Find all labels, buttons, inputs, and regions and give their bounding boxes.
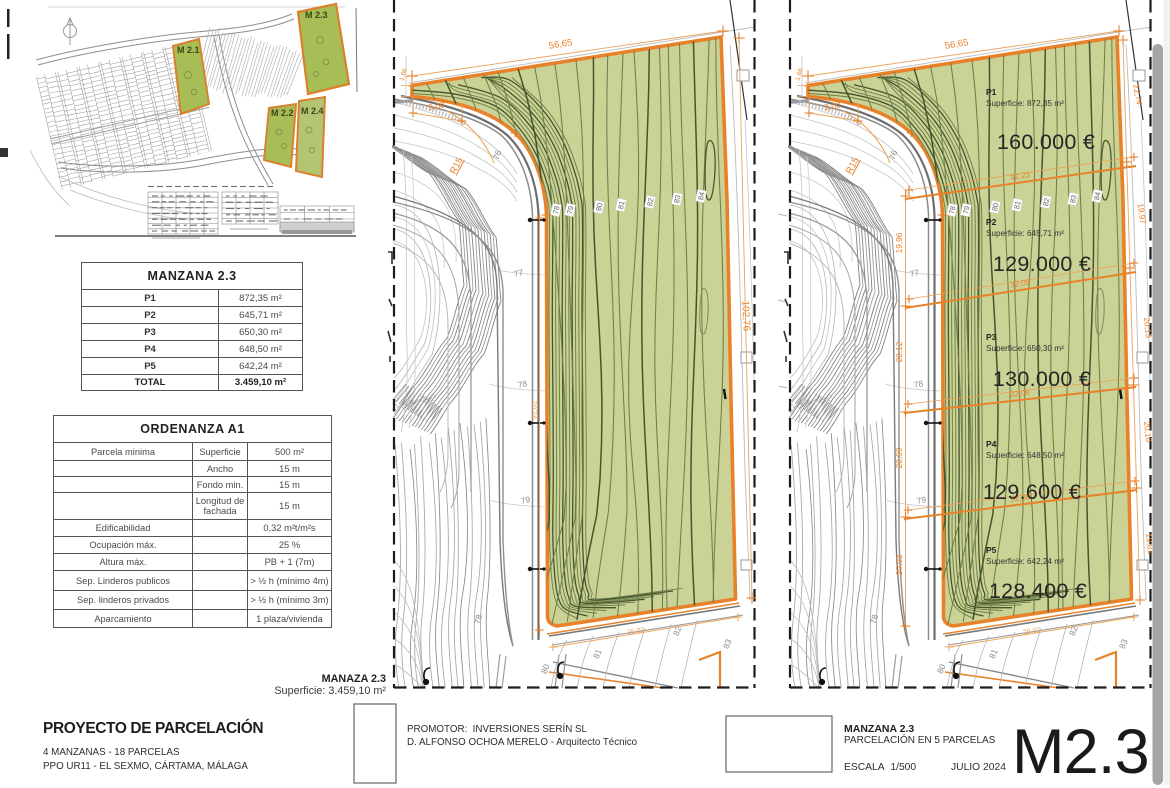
- svg-text:Superficie: 648,50 m²: Superficie: 648,50 m²: [986, 451, 1064, 460]
- svg-text:P2: P2: [986, 217, 997, 227]
- svg-text:130.000 €: 130.000 €: [993, 367, 1091, 391]
- svg-text:22,74: 22,74: [1131, 83, 1145, 106]
- svg-text:19,96: 19,96: [894, 232, 904, 253]
- svg-text:129.000 €: 129.000 €: [993, 252, 1091, 276]
- svg-text:P3: P3: [986, 332, 997, 342]
- svg-text:P5: P5: [986, 545, 997, 555]
- svg-text:92,02: 92,02: [530, 401, 539, 420]
- svg-text:M 2.4: M 2.4: [301, 106, 324, 116]
- svg-text:20,09: 20,09: [894, 447, 904, 468]
- svg-text:Superficie: 872,35 m²: Superficie: 872,35 m²: [986, 99, 1064, 108]
- svg-text:Superficie: 645,71 m²: Superficie: 645,71 m²: [986, 229, 1064, 238]
- svg-text:20,12: 20,12: [894, 341, 904, 362]
- svg-text:102,76: 102,76: [739, 300, 752, 332]
- svg-text:20,10: 20,10: [1142, 421, 1154, 443]
- svg-text:M 2.1: M 2.1: [177, 45, 200, 55]
- svg-text:128.400 €: 128.400 €: [989, 579, 1087, 603]
- svg-text:P4: P4: [986, 439, 997, 449]
- svg-text:160.000 €: 160.000 €: [997, 130, 1095, 154]
- svg-text:129.600 €: 129.600 €: [983, 480, 1081, 504]
- svg-text:19,97: 19,97: [1136, 203, 1149, 225]
- svg-text:20,13: 20,13: [1142, 317, 1154, 339]
- svg-text:Superficie: 642,24 m²: Superficie: 642,24 m²: [986, 557, 1064, 566]
- svg-text:Superficie: 650,30 m²: Superficie: 650,30 m²: [986, 344, 1064, 353]
- svg-text:M 2.3: M 2.3: [305, 10, 328, 20]
- svg-text:P1: P1: [986, 87, 997, 97]
- svg-text:20,03: 20,03: [894, 554, 904, 575]
- svg-text:M 2.2: M 2.2: [271, 108, 294, 118]
